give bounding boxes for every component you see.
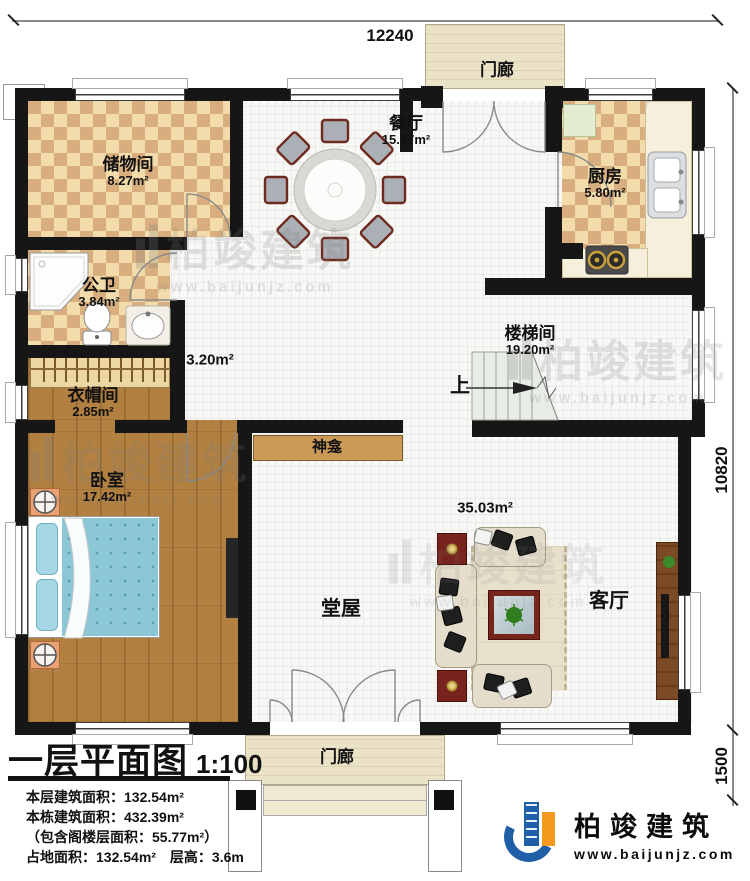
wall-segment <box>230 101 243 237</box>
brand-name: 柏竣建筑 <box>574 805 735 844</box>
porch-label-top: 门廊 <box>480 60 514 79</box>
wall-segment <box>237 420 403 433</box>
room-label-hall: 堂屋 <box>321 598 361 620</box>
room-name: 神龛 <box>312 440 342 457</box>
window <box>75 88 185 101</box>
room-label-bathroom: 公卫 3.84m² <box>78 276 119 310</box>
wall-segment <box>420 722 500 735</box>
annotation-text: 上 <box>450 375 470 397</box>
window <box>15 258 28 292</box>
room-label-kitchen: 厨房 5.80m² <box>584 167 625 201</box>
window <box>290 88 400 101</box>
room-name: 储物间 <box>103 155 154 174</box>
room-area: 3.84m² <box>78 295 119 310</box>
window <box>588 88 653 101</box>
room-name: 公卫 <box>78 276 119 295</box>
porch-label-bottom: 门廊 <box>320 747 354 766</box>
stat-line: 占地面积：132.54m² 层高：3.6m <box>26 847 244 867</box>
brand-logo-icon <box>506 800 564 866</box>
room-area: 19.20m² <box>505 343 556 358</box>
room-name: 门廊 <box>320 747 354 766</box>
living-tv <box>661 594 669 658</box>
sofa-seat <box>472 664 552 708</box>
brand-logo: 柏竣建筑 www.baijunjz.com <box>506 800 735 866</box>
end-table <box>437 670 467 702</box>
logo-building-orange <box>542 812 555 846</box>
wall-segment <box>692 235 705 310</box>
nightstand <box>30 641 60 669</box>
area-stats: 本层建筑面积：132.54m² 本栋建筑面积：432.39m² （包含阁楼层面积… <box>26 787 244 867</box>
room-name: 堂屋 <box>321 598 361 620</box>
wall-segment <box>15 292 28 385</box>
room-name: 衣帽间 <box>68 386 119 405</box>
room-area: 8.27m² <box>103 174 154 189</box>
stat-line: 本栋建筑面积：432.39m² <box>26 807 244 827</box>
room-label-dining: 餐厅 15.27m² <box>382 114 430 148</box>
room-label-bedroom: 卧室 17.42m² <box>83 471 131 505</box>
dimension-right-value: 10820 <box>712 446 732 493</box>
sofa-seat <box>435 564 477 668</box>
bed-pillow <box>36 579 58 631</box>
wall-segment <box>545 243 583 259</box>
room-area: 5.80m² <box>584 186 625 201</box>
brand-url: www.baijunjz.com <box>574 846 735 862</box>
porch-column-core <box>434 790 454 810</box>
room-name: 客厅 <box>589 590 629 612</box>
room-label-cloakroom: 衣帽间 2.85m² <box>68 386 119 420</box>
window <box>692 150 705 235</box>
nightstand <box>30 488 60 516</box>
room-name: 厨房 <box>584 167 625 186</box>
hallway-area-label: 3.20m² <box>186 353 234 370</box>
bed-pillow <box>36 523 58 575</box>
bed-blanket <box>62 518 158 636</box>
window <box>500 722 630 735</box>
wall-segment <box>15 237 187 250</box>
stairs-up-label: 上 <box>450 375 470 397</box>
wall-segment <box>15 88 28 258</box>
wall-segment <box>15 345 185 358</box>
room-label-stairwell: 楼梯间 19.20m² <box>505 324 556 358</box>
end-table <box>437 533 467 565</box>
window <box>15 385 28 420</box>
wall-segment <box>15 420 28 525</box>
wall-segment <box>15 420 55 433</box>
room-area: 35.03m² <box>457 501 513 518</box>
room-area: 3.20m² <box>186 353 234 370</box>
wall-segment <box>170 300 185 433</box>
room-area: 2.85m² <box>68 405 119 420</box>
wardrobe-rail <box>31 368 169 370</box>
room-label-living: 客厅 <box>589 590 629 612</box>
room-label-storage: 储物间 8.27m² <box>103 155 154 189</box>
shrine-label: 神龛 <box>312 440 342 457</box>
wall-segment <box>485 278 705 295</box>
room-name: 门廊 <box>480 60 514 79</box>
room-name: 卧室 <box>83 471 131 490</box>
wall-segment <box>545 88 562 152</box>
coffee-table-glass <box>494 596 534 634</box>
dimension-line-top <box>12 20 718 22</box>
window <box>15 525 28 635</box>
dimension-line-right <box>732 88 734 806</box>
window <box>678 595 691 690</box>
door-post <box>421 86 443 108</box>
room-area: 15.27m² <box>382 133 430 148</box>
room-name: 餐厅 <box>382 114 430 133</box>
stat-line: （包含阁楼层面积：55.77m²） <box>26 827 244 847</box>
sofa-seat <box>474 527 546 567</box>
wall-segment <box>563 88 588 101</box>
wall-segment <box>692 88 705 150</box>
room-name: 楼梯间 <box>505 324 556 343</box>
title-underline <box>8 776 230 781</box>
fridge <box>563 104 596 137</box>
wall-segment <box>630 722 691 735</box>
bedroom-tv <box>226 538 238 618</box>
wall-segment <box>238 420 252 722</box>
hall-area-label: 35.03m² <box>457 501 513 518</box>
stat-line: 本层建筑面积：132.54m² <box>26 787 244 807</box>
logo-building-blue <box>524 802 539 846</box>
wall-segment <box>472 420 705 437</box>
kitchen-counter <box>645 101 692 278</box>
coffee-table <box>488 590 540 640</box>
floor-plan: 12240 10820 1500 <box>0 0 750 881</box>
wall-segment <box>115 420 187 433</box>
room-area: 17.42m² <box>83 490 131 505</box>
window <box>692 310 705 400</box>
porch-steps <box>263 785 427 816</box>
wall-segment <box>15 635 28 735</box>
wall-segment <box>678 423 691 595</box>
dimension-top-value: 12240 <box>366 26 413 46</box>
wall-segment <box>185 88 290 101</box>
dimension-porch-value: 1500 <box>712 747 732 785</box>
